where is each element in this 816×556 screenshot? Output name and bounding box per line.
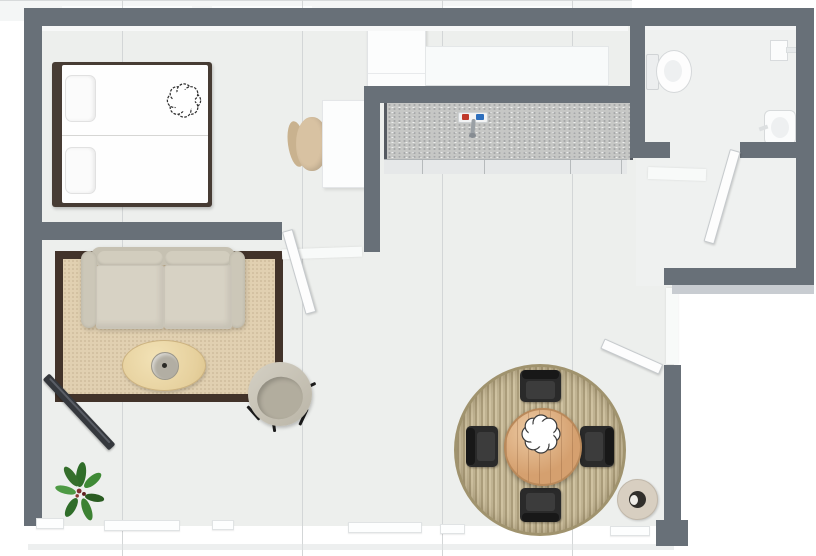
window-sill (104, 520, 180, 531)
plant (54, 458, 112, 524)
sofa (81, 247, 245, 332)
flower-centerpiece (521, 414, 561, 454)
wall-bathroom-south-right (740, 142, 796, 158)
chair-seat (477, 432, 495, 461)
dining-chair-west (466, 426, 498, 467)
wall-right (796, 8, 814, 286)
chair-back (522, 370, 559, 379)
desk (322, 100, 366, 188)
sofa-seat-cushion (96, 265, 164, 329)
wall-hall-south (664, 268, 814, 285)
wall-top-inner-face-bath (645, 26, 796, 30)
cabinet-seam (422, 160, 423, 174)
cabinet-seam (484, 160, 485, 174)
wall-left (24, 8, 42, 526)
chair-seat (526, 493, 555, 511)
wall-top (24, 8, 814, 26)
sink-faucet (456, 110, 490, 138)
bed-flower-cushion (166, 83, 202, 118)
wall-dining-right (664, 365, 681, 524)
wall-bedroom-south (42, 222, 282, 240)
chair-back (522, 513, 559, 522)
dining-chair-south (520, 488, 561, 522)
bed-pillow (65, 75, 96, 122)
wall-bathroom-south-left (630, 142, 670, 158)
lounge-chair (246, 360, 314, 428)
cold-tap-icon (476, 114, 484, 120)
window-sill (610, 526, 650, 536)
refrigerator (367, 24, 426, 87)
wall-kitchen-horizontal (364, 86, 630, 103)
window-wall-shadow (28, 544, 674, 550)
wall-top-inner-face (42, 26, 628, 31)
chair-back (605, 428, 614, 465)
sofa-seat-cushion (164, 265, 232, 329)
coffee-table (122, 340, 206, 391)
cabinet-seam (621, 160, 622, 174)
sofa-back-cushion (165, 251, 231, 266)
window-sill (36, 518, 64, 529)
wall-cabinet (425, 46, 609, 87)
kitchen-cabinet-front (384, 159, 627, 174)
dining-chair-north (520, 370, 561, 402)
wall-bathroom-left (630, 26, 645, 158)
double-bed (52, 62, 212, 207)
wall-hall-south-face (672, 285, 814, 294)
basin-bowl (771, 117, 789, 138)
window-sill (212, 520, 234, 530)
kitchen-counter (384, 103, 633, 160)
faucet-base (469, 133, 476, 138)
chair-seat (585, 432, 603, 461)
toilet (656, 50, 692, 93)
chair-seat (526, 381, 555, 399)
floor-plan-canvas (0, 0, 816, 556)
toilet-bowl-inner (664, 60, 682, 82)
hot-tap-icon (462, 114, 469, 120)
wash-basin (764, 110, 796, 145)
wall-kitchen-vertical (364, 86, 380, 252)
chair-back (466, 428, 475, 465)
sofa-back-cushion (97, 251, 163, 266)
wall-corner-southeast (656, 520, 688, 546)
sofa-armrest (81, 251, 97, 328)
table-bowl (151, 352, 179, 380)
bed-pillow (65, 147, 96, 194)
cabinet-seam (570, 160, 571, 174)
window-sill (348, 522, 422, 533)
floor-planter (617, 479, 658, 520)
hall-kitchen-threshold (648, 167, 706, 181)
dining-chair-east (580, 426, 614, 467)
planter-highlight (630, 495, 638, 505)
entry-door-threshold (666, 288, 678, 364)
window-sill (440, 524, 465, 534)
